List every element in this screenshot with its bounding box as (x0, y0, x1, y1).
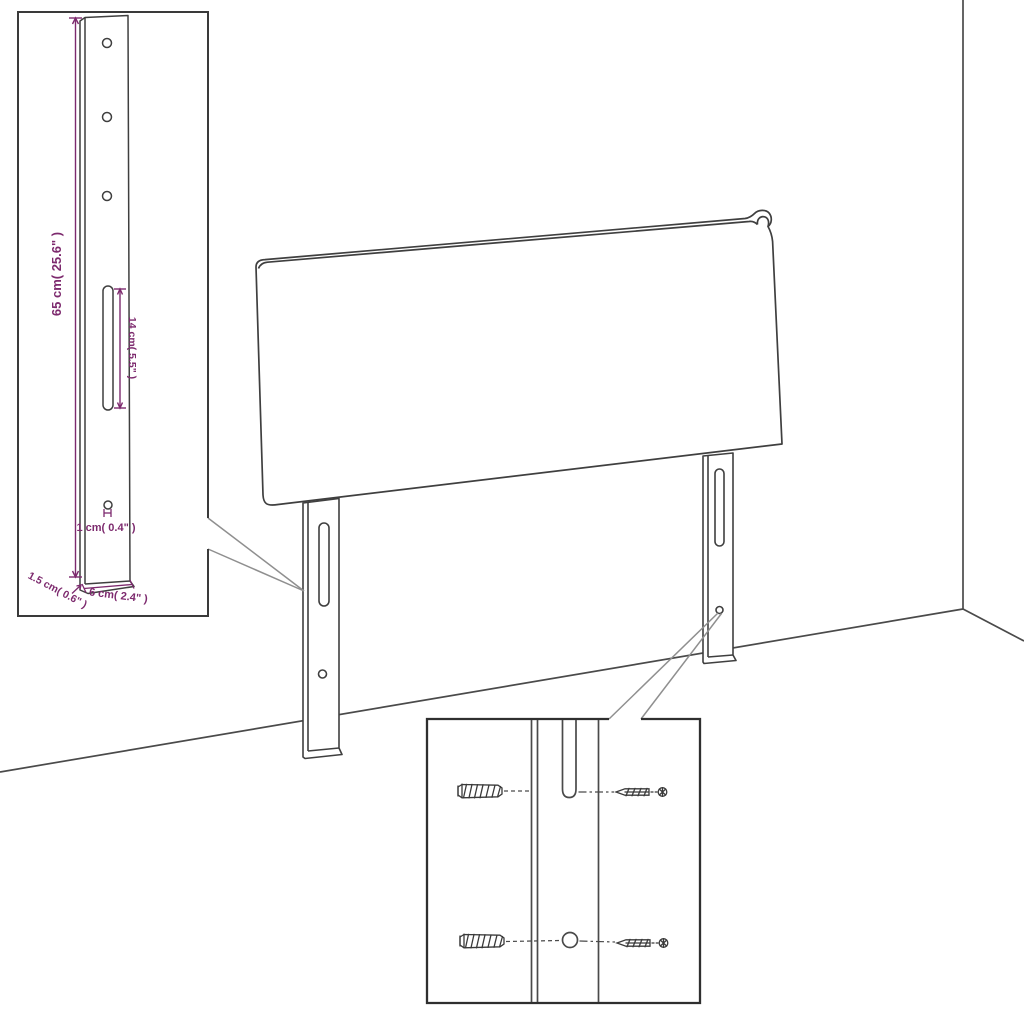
screw-icon-top (616, 788, 667, 797)
leg-detail-inset: 65 cm( 25.6" ) 14 cm( 5.5" ) 1 cm( 0.4" … (18, 12, 208, 616)
hardware-detail-slot (563, 720, 577, 798)
screw-icon-bottom (617, 939, 668, 948)
hardware-detail-hole (563, 933, 578, 948)
left-leg-body (303, 499, 342, 759)
wall-plug-icon-bottom (460, 934, 504, 948)
headboard-left-leg (303, 499, 342, 759)
floor-line-right (963, 609, 1024, 641)
diagram-stage: 65 cm( 25.6" ) 14 cm( 5.5" ) 1 cm( 0.4" … (0, 0, 1024, 1024)
dimension-width-label: 6 cm( 2.4" ) (88, 586, 148, 605)
dimension-height-label: 65 cm( 25.6" ) (49, 232, 64, 316)
hardware-detail-inset-border (427, 719, 700, 1003)
hardware-detail-leg-strip (532, 720, 599, 1002)
floor-line-left (0, 609, 963, 772)
callout-wedge-left (208, 518, 304, 591)
leg-detail-body (80, 16, 134, 594)
hardware-detail-inset (427, 719, 700, 1003)
dimension-slot-label: 14 cm( 5.5" ) (126, 317, 138, 379)
dimension-hole-label: 1 cm( 0.4" ) (76, 522, 135, 534)
headboard-diagram-canvas: 65 cm( 25.6" ) 14 cm( 5.5" ) 1 cm( 0.4" … (0, 0, 1024, 1024)
wall-plug-icon-top (458, 784, 502, 798)
leg-detail-drawing (80, 16, 134, 594)
